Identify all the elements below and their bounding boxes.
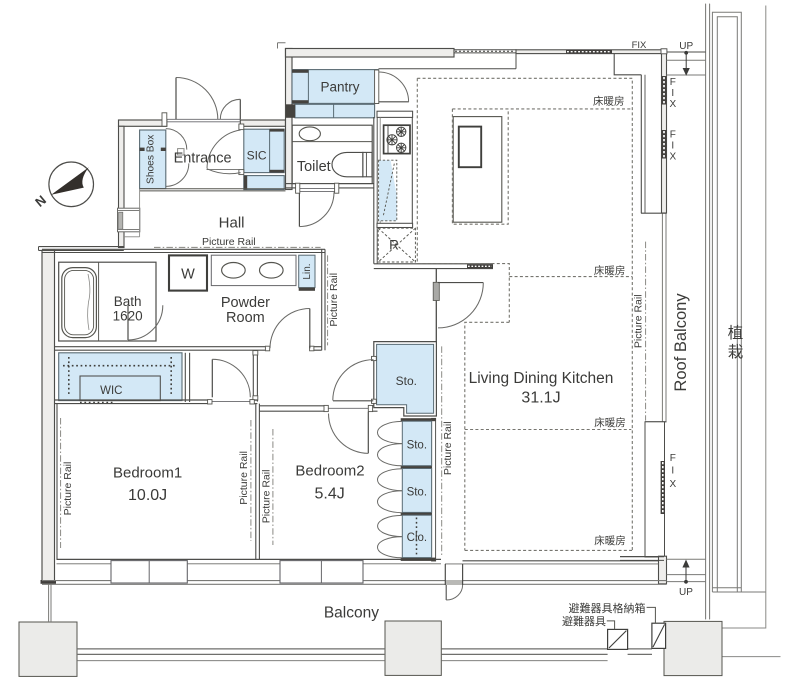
svg-text:Bedroom2: Bedroom2 bbox=[295, 462, 364, 479]
svg-text:Picture Rail: Picture Rail bbox=[328, 273, 340, 327]
svg-text:Hall: Hall bbox=[219, 214, 245, 231]
svg-text:F: F bbox=[670, 453, 676, 464]
svg-text:5.4J: 5.4J bbox=[314, 485, 344, 502]
svg-text:WIC: WIC bbox=[100, 385, 122, 397]
svg-text:避難器具格納箱: 避難器具格納箱 bbox=[569, 601, 646, 615]
svg-text:避難器具: 避難器具 bbox=[562, 614, 606, 628]
svg-text:Balcony: Balcony bbox=[324, 605, 379, 622]
svg-text:F: F bbox=[670, 77, 676, 88]
svg-text:31.1J: 31.1J bbox=[521, 390, 560, 407]
svg-text:Living Dining Kitchen: Living Dining Kitchen bbox=[469, 370, 614, 387]
svg-text:X: X bbox=[669, 152, 676, 163]
svg-text:Picture Rail: Picture Rail bbox=[442, 421, 454, 475]
svg-text:栽: 栽 bbox=[728, 343, 744, 361]
svg-text:SIC: SIC bbox=[247, 148, 267, 162]
svg-text:Bedroom1: Bedroom1 bbox=[113, 464, 182, 481]
svg-text:X: X bbox=[669, 99, 676, 110]
svg-text:Lin.: Lin. bbox=[302, 263, 313, 279]
svg-text:I: I bbox=[671, 466, 674, 477]
svg-text:Picture Rail: Picture Rail bbox=[238, 451, 250, 505]
svg-text:10.0J: 10.0J bbox=[128, 487, 167, 504]
svg-text:Sto.: Sto. bbox=[407, 440, 427, 452]
svg-text:Roof Balcony: Roof Balcony bbox=[672, 293, 690, 392]
svg-text:床暖房: 床暖房 bbox=[594, 534, 626, 547]
svg-text:I: I bbox=[671, 141, 674, 152]
svg-text:Picture Rail: Picture Rail bbox=[633, 294, 645, 348]
svg-text:UP: UP bbox=[679, 41, 693, 52]
svg-text:UP: UP bbox=[679, 587, 693, 598]
svg-text:Toilet: Toilet bbox=[297, 159, 331, 175]
svg-text:Clo.: Clo. bbox=[407, 532, 427, 544]
svg-text:Picture Rail: Picture Rail bbox=[260, 470, 272, 524]
svg-text:Powder: Powder bbox=[221, 295, 270, 311]
svg-text:Entrance: Entrance bbox=[174, 150, 232, 166]
svg-text:床暖房: 床暖房 bbox=[593, 95, 625, 108]
svg-text:Shoes Box: Shoes Box bbox=[146, 135, 157, 184]
svg-text:R: R bbox=[389, 238, 399, 253]
svg-text:Pantry: Pantry bbox=[320, 80, 359, 95]
svg-text:植: 植 bbox=[728, 324, 744, 342]
svg-text:X: X bbox=[669, 479, 676, 490]
svg-text:Picture Rail: Picture Rail bbox=[202, 236, 256, 248]
svg-text:Sto.: Sto. bbox=[407, 486, 427, 498]
svg-text:床暖房: 床暖房 bbox=[594, 264, 626, 277]
svg-text:Picture Rail: Picture Rail bbox=[62, 462, 74, 516]
svg-text:床暖房: 床暖房 bbox=[594, 416, 626, 429]
svg-text:I: I bbox=[671, 88, 674, 99]
svg-text:Room: Room bbox=[226, 310, 265, 326]
svg-text:F: F bbox=[670, 130, 676, 141]
svg-text:FIX: FIX bbox=[632, 40, 647, 51]
svg-text:Sto.: Sto. bbox=[396, 374, 417, 388]
svg-text:W: W bbox=[181, 266, 195, 282]
